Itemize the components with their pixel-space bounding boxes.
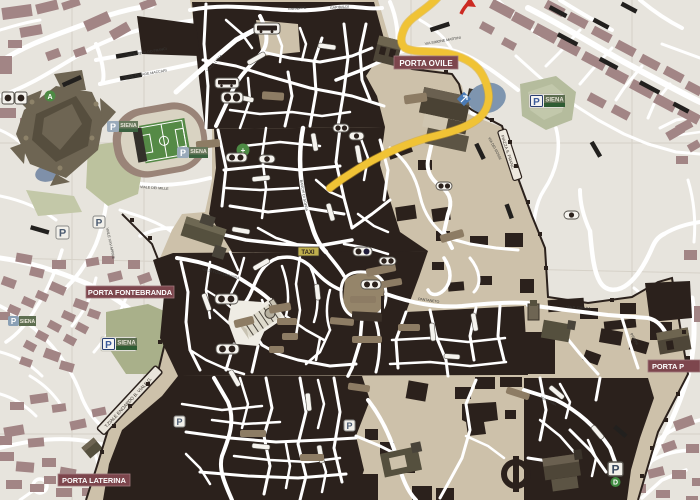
svg-text:P: P <box>11 317 17 326</box>
svg-text:P: P <box>611 463 619 477</box>
svg-text:SIENA: SIENA <box>545 97 564 103</box>
svg-text:P: P <box>346 421 352 431</box>
svg-text:PORTA LATERINA: PORTA LATERINA <box>62 476 127 485</box>
svg-text:P: P <box>176 417 182 427</box>
svg-text:PORTA OVILE: PORTA OVILE <box>399 59 453 68</box>
svg-text:P: P <box>533 97 540 108</box>
svg-text:P: P <box>110 122 116 132</box>
svg-text:P: P <box>180 148 186 158</box>
svg-text:P: P <box>59 228 66 240</box>
svg-text:SIENA: SIENA <box>190 149 207 155</box>
svg-text:D: D <box>613 480 618 487</box>
svg-text:SIENA: SIENA <box>20 319 36 325</box>
svg-text:A: A <box>47 94 52 101</box>
svg-text:P: P <box>105 340 112 351</box>
svg-text:P: P <box>96 218 103 229</box>
svg-text:TAXI: TAXI <box>301 250 315 256</box>
svg-text:SIENA: SIENA <box>117 340 136 346</box>
svg-text:SIENA: SIENA <box>120 123 137 129</box>
svg-text:PORTA P: PORTA P <box>652 362 684 371</box>
svg-text:PORTA FONTEBRANDA: PORTA FONTEBRANDA <box>88 288 173 297</box>
